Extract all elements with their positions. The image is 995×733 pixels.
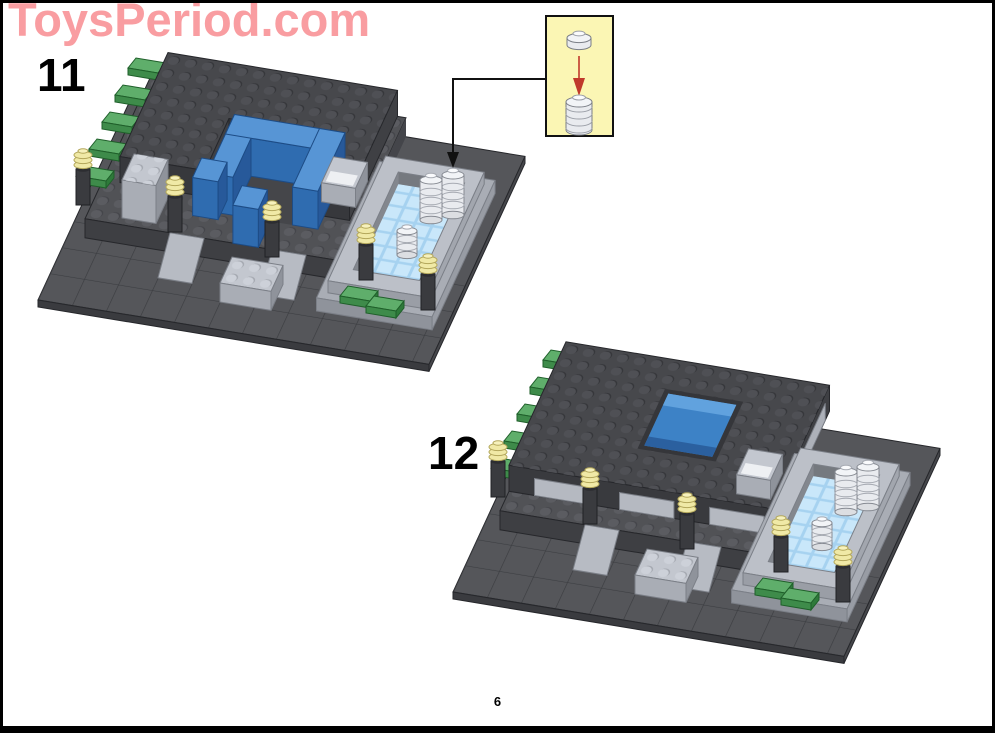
light-gray-brick-stack <box>122 154 168 224</box>
callout-box <box>546 16 613 136</box>
watermark: ToysPeriod.com <box>8 0 370 46</box>
round-plate-stack-icon <box>566 95 592 135</box>
instruction-graphics <box>0 0 995 733</box>
page-canvas: ToysPeriod.com 11 12 6 <box>0 0 995 733</box>
step-number-12: 12 <box>428 430 479 476</box>
instruction-page: ToysPeriod.com 11 12 6 <box>0 0 995 733</box>
lego-model-step-12 <box>453 342 940 664</box>
page-number: 6 <box>0 694 995 709</box>
lego-model-step-11 <box>38 53 525 372</box>
step-number-11: 11 <box>37 52 86 98</box>
